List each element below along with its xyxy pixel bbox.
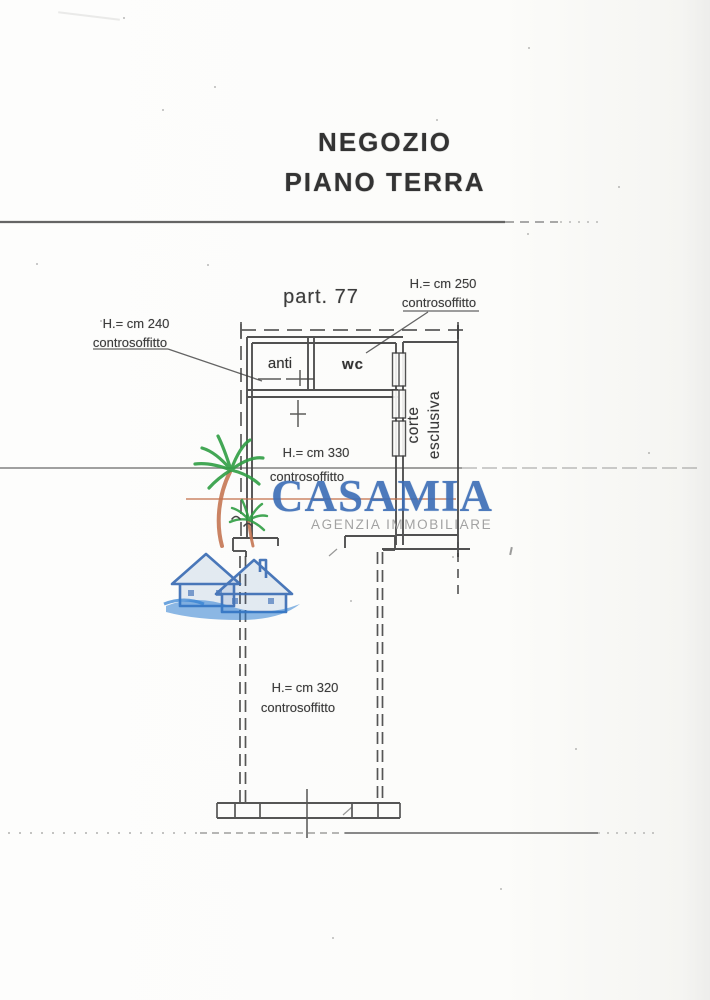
height-note-320-value: H.= cm 320 — [272, 680, 339, 695]
scan-speckle — [648, 452, 650, 454]
scan-speckle — [575, 748, 577, 750]
height-note-250-value: H.= cm 250 — [410, 276, 477, 291]
height-note-240-caption: controsoffitto — [93, 335, 167, 350]
room-label-anti: anti — [268, 355, 292, 372]
height-note-330-caption: controsoffitto — [270, 469, 344, 484]
scan-speckle — [436, 119, 438, 121]
scan-speckle — [528, 47, 530, 49]
height-note-320-caption: controsoffitto — [261, 700, 335, 715]
scan-speckle — [162, 109, 164, 111]
plan-title-line1: NEGOZIO — [318, 127, 452, 158]
scan-speckle — [36, 263, 38, 265]
scan-speckle — [527, 233, 529, 235]
height-note-240-value: H.= cm 240 — [103, 316, 170, 331]
scanned-floorplan-page: NEGOZIO PIANO TERRA part. 77 H.= cm 250 … — [0, 0, 710, 1000]
survey-lines — [0, 222, 700, 833]
parcel-label: part. 77 — [283, 286, 359, 309]
courtyard-label-line2: esclusiva — [424, 391, 445, 459]
height-note-250-caption: controsoffitto — [402, 295, 476, 310]
height-note-330-value: H.= cm 330 — [283, 445, 350, 460]
plan-title-line2: PIANO TERRA — [284, 167, 485, 198]
scan-speckle — [100, 320, 102, 322]
scan-speckle — [214, 86, 216, 88]
door-tick-marks — [258, 370, 314, 427]
scan-speckle — [452, 556, 454, 558]
scan-speckle — [332, 937, 334, 939]
room-label-wc: wc — [342, 356, 364, 373]
scan-speckle — [207, 264, 209, 266]
scan-speckle — [618, 186, 620, 188]
scan-speckle — [123, 17, 125, 19]
scan-speckle — [350, 600, 352, 602]
courtyard-label: corte esclusiva — [403, 391, 445, 459]
scan-speckle — [500, 888, 502, 890]
courtyard-label-line1: corte — [403, 391, 424, 459]
